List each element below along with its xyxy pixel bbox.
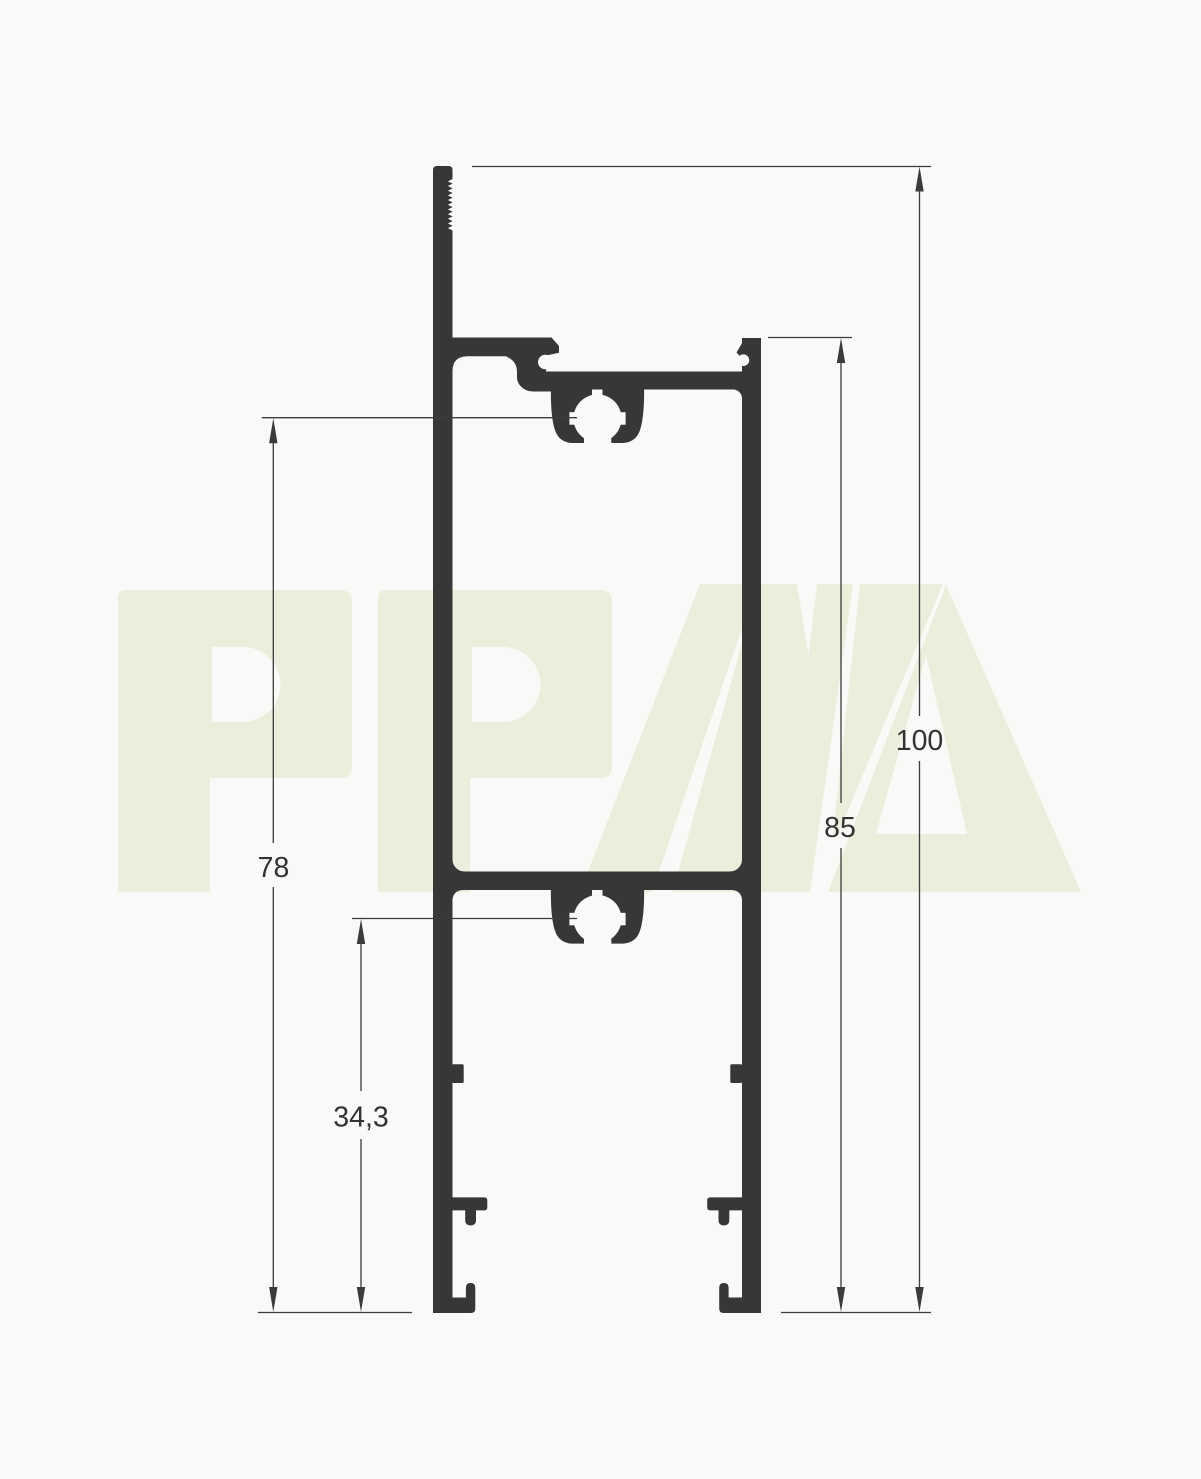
- svg-text:34,3: 34,3: [333, 1102, 388, 1134]
- svg-text:78: 78: [258, 852, 290, 884]
- svg-text:85: 85: [824, 812, 856, 844]
- svg-text:100: 100: [896, 725, 944, 757]
